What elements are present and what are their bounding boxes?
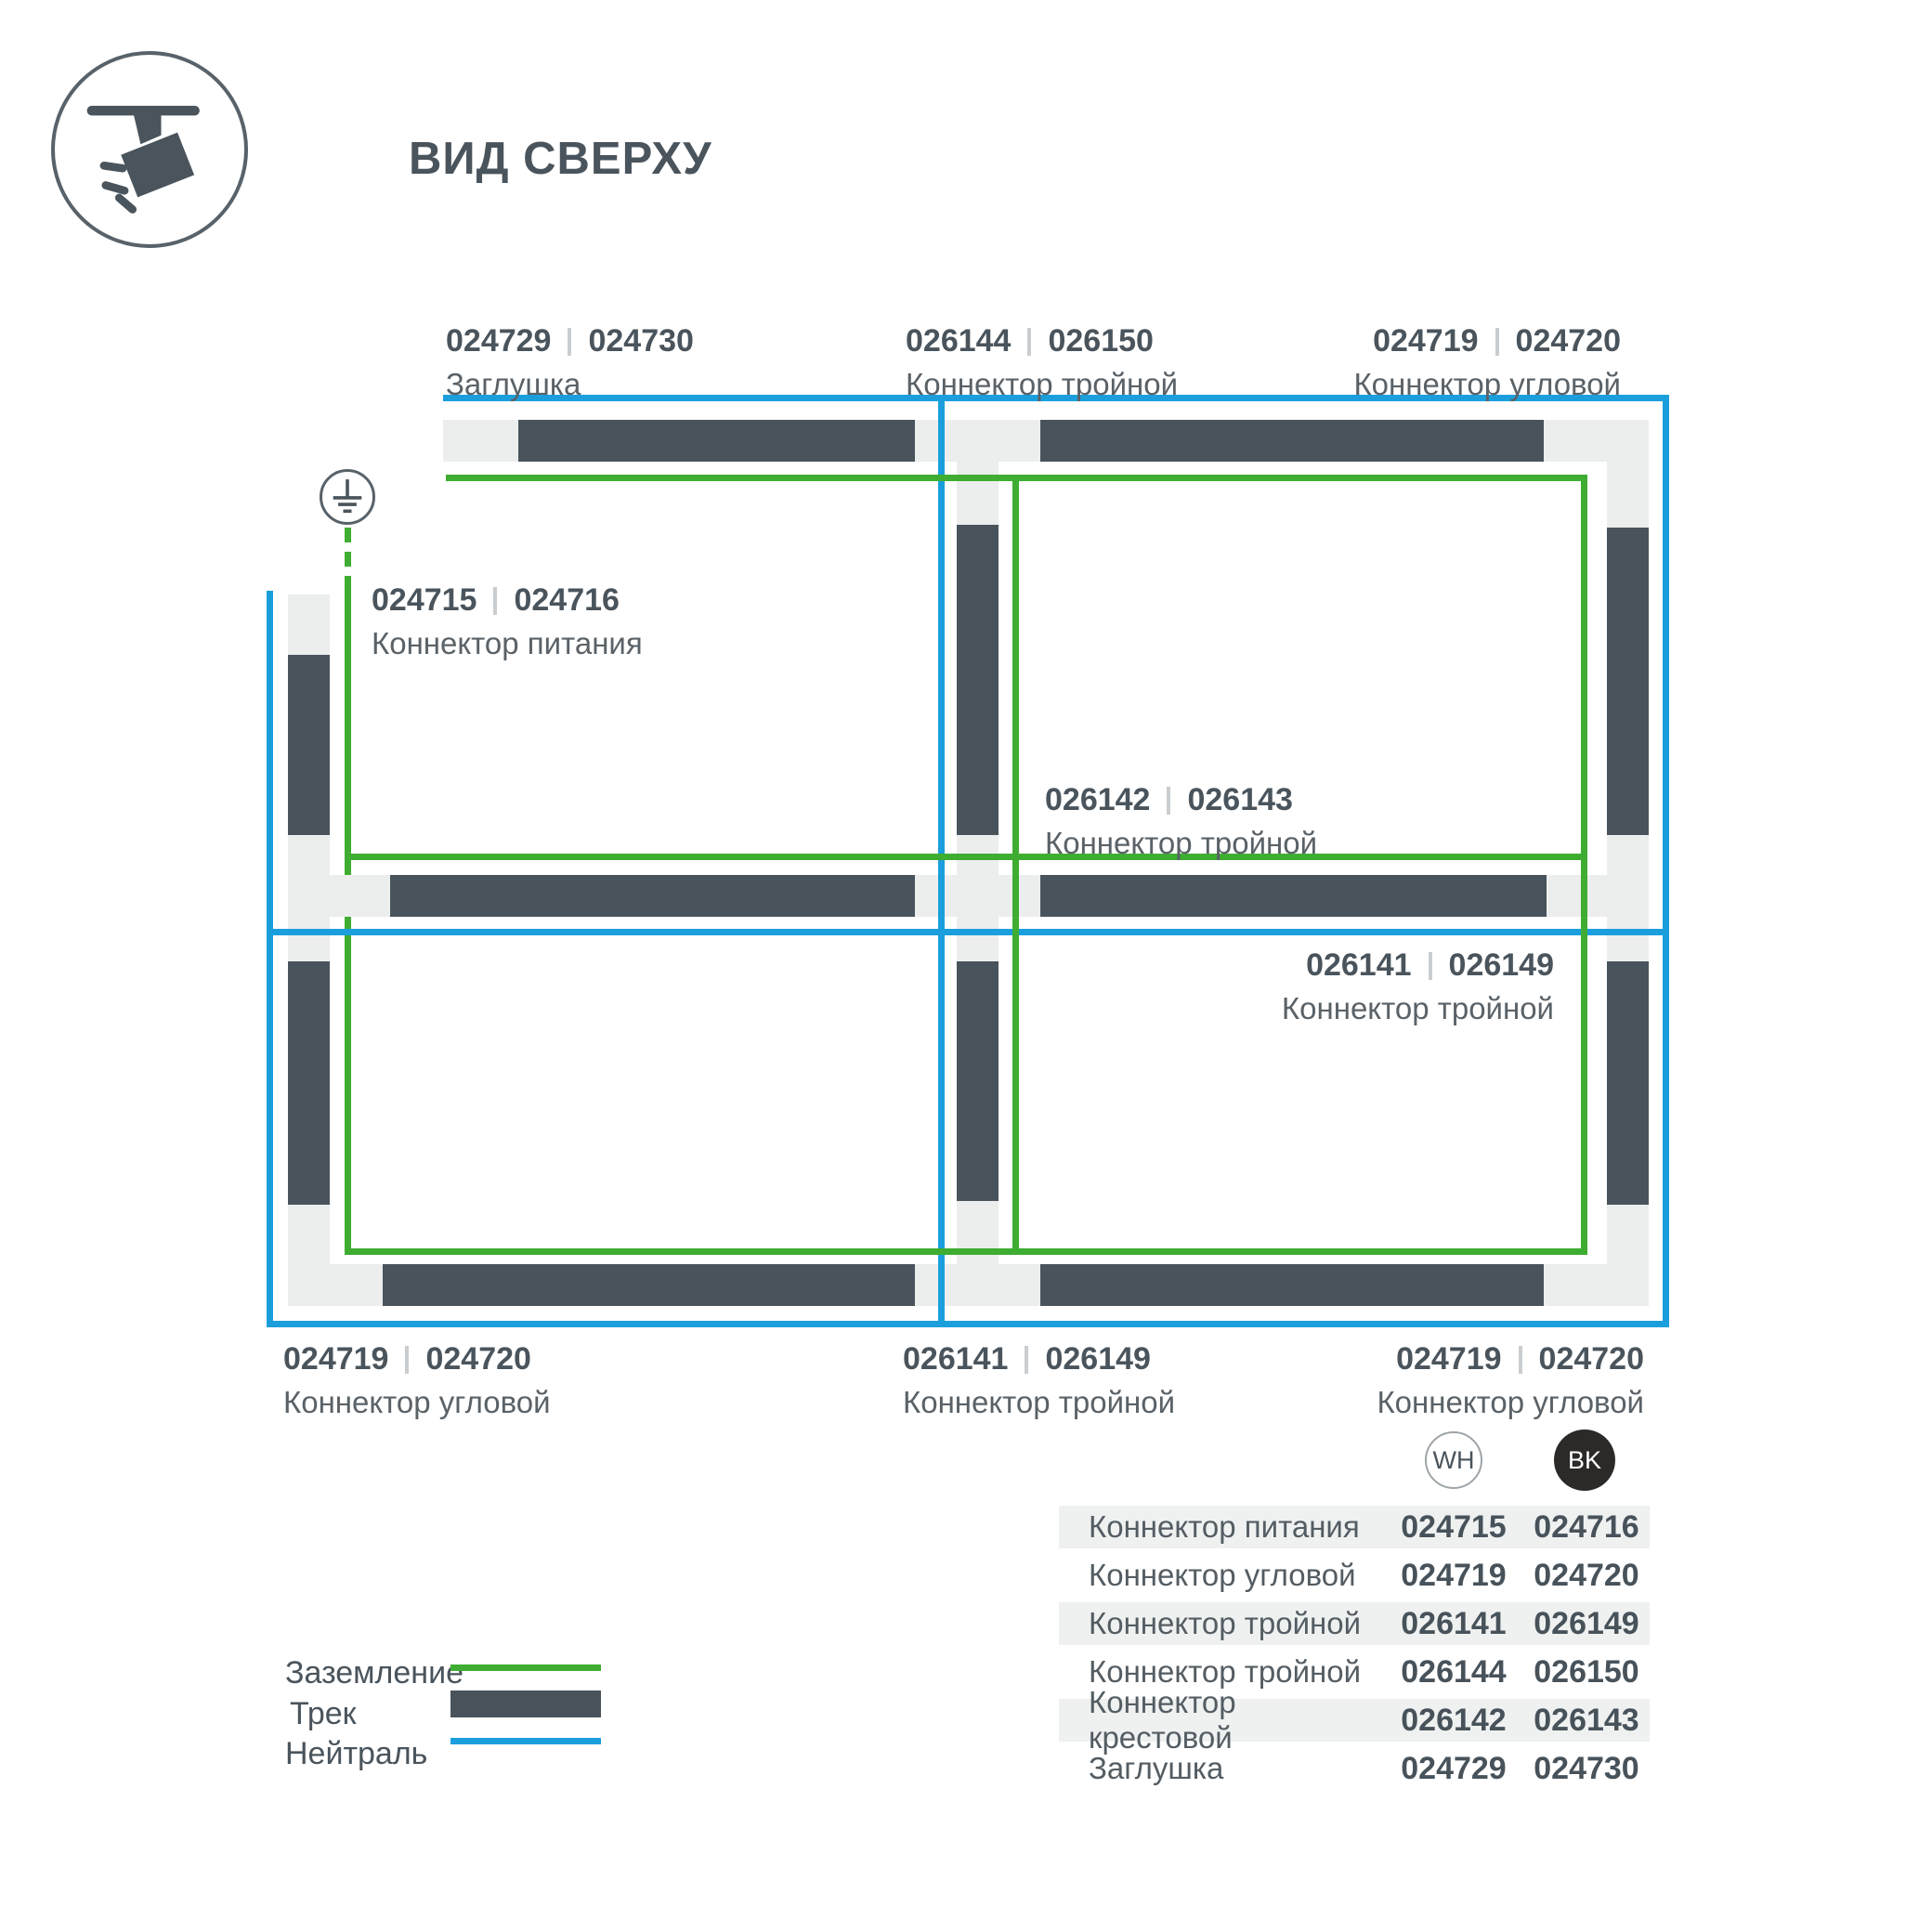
part-label: Коннектор крестовой: [1059, 1685, 1384, 1756]
part-code-bk: 024716: [1523, 1509, 1650, 1546]
neutral-wire-middle-horizontal: [267, 929, 1669, 935]
label-power-connector: 024715024716 Коннектор питания: [372, 582, 643, 661]
connector-end-cap-top: [443, 420, 518, 462]
label-tee-bottom: 026141026149 Коннектор тройной: [903, 1341, 1175, 1420]
connector-tee-bottom-horizontal-part: [915, 1264, 1040, 1306]
legend-swatch-track: [450, 1690, 601, 1717]
neutral-wire-bottom: [267, 1321, 1669, 1327]
connector-power-feed-cap-left: [288, 594, 330, 655]
code-wh: 024715: [372, 582, 476, 619]
table-row: Коннектор крестовой 026142 026143: [1059, 1696, 1650, 1744]
legend-swatch-ground: [450, 1664, 601, 1671]
label-tee-right: 026141026149 Коннектор тройной: [1282, 947, 1554, 1026]
part-name: Коннектор угловой: [1377, 1385, 1644, 1420]
connector-tee-top-horizontal-part: [915, 420, 1040, 462]
connector-tee-right-stem: [1547, 875, 1607, 917]
track-top-horizontal: [443, 420, 1649, 462]
ground-wire-right: [1581, 475, 1587, 1255]
neutral-wire-middle-vertical: [938, 395, 945, 1327]
part-code-wh: 026142: [1384, 1703, 1523, 1739]
table-row: Коннектор тройной 026141 026149: [1059, 1599, 1650, 1648]
connector-corner-topright-horizontal-part: [1544, 420, 1649, 462]
part-name: Коннектор питания: [372, 626, 643, 661]
code-wh: 024719: [1396, 1341, 1501, 1377]
part-code-bk: 024730: [1523, 1751, 1650, 1787]
code-wh: 026142: [1045, 782, 1150, 818]
label-cross-center: 026142026143 Коннектор тройной: [1045, 782, 1317, 861]
color-badge-black: BK: [1554, 1429, 1615, 1491]
table-row: Заглушка 024729 024730: [1059, 1744, 1650, 1793]
code-wh: 026141: [903, 1341, 1008, 1377]
separator: [1025, 1346, 1028, 1374]
separator: [1429, 952, 1432, 980]
connector-tee-left-stem: [330, 875, 390, 917]
connector-corner-bottomleft-horizontal-part: [288, 1264, 383, 1306]
part-code-wh: 024715: [1384, 1509, 1523, 1546]
connector-tee-left-vertical-part: [288, 835, 330, 961]
label-corner-bottomright: 024719024720 Коннектор угловой: [1377, 1341, 1644, 1420]
page: ВИД СВЕРХУ: [0, 0, 1932, 1932]
legend-label-ground: Заземление: [285, 1655, 463, 1691]
code-wh: 026144: [906, 323, 1011, 359]
code-wh: 024719: [283, 1341, 388, 1377]
connector-corner-bottomright-horizontal-part: [1544, 1264, 1649, 1306]
track-spotlight-icon: [51, 51, 248, 248]
ground-wire-middle-vertical: [1012, 475, 1019, 1255]
part-label: Коннектор тройной: [1059, 1606, 1384, 1641]
connector-tee-right-vertical-part: [1607, 835, 1649, 961]
part-label: Заглушка: [1059, 1751, 1384, 1786]
ground-wire-bottom: [345, 1248, 1587, 1255]
separator: [1495, 328, 1499, 356]
earth-ground-icon: [320, 469, 375, 525]
code-bk: 024720: [1516, 323, 1621, 359]
part-label: Коннектор питания: [1059, 1509, 1384, 1545]
separator: [1167, 787, 1170, 815]
code-bk: 026143: [1187, 782, 1292, 818]
part-code-bk: 026150: [1523, 1654, 1650, 1690]
parts-table: Коннектор питания 024715 024716 Коннекто…: [1059, 1503, 1650, 1793]
part-code-bk: 026143: [1523, 1703, 1650, 1739]
part-name: Коннектор тройной: [1045, 826, 1317, 861]
label-corner-bottomleft: 024719024720 Коннектор угловой: [283, 1341, 551, 1420]
code-bk: 024720: [425, 1341, 530, 1377]
code-wh: 024729: [446, 323, 551, 359]
label-tee-top: 026144026150 Коннектор тройной: [906, 323, 1178, 402]
part-name: Коннектор тройной: [906, 367, 1178, 402]
part-label: Коннектор угловой: [1059, 1558, 1384, 1593]
code-bk: 024716: [514, 582, 619, 619]
code-bk: 026150: [1048, 323, 1153, 359]
part-code-bk: 024720: [1523, 1558, 1650, 1594]
separator: [1519, 1346, 1522, 1374]
ground-wire-left-vertical: [345, 591, 351, 1248]
part-name: Коннектор тройной: [903, 1385, 1175, 1420]
part-name: Заглушка: [446, 367, 694, 402]
code-wh: 026141: [1306, 947, 1411, 984]
part-code-wh: 026141: [1384, 1606, 1523, 1642]
track-spotlight-glyph: [55, 55, 244, 244]
table-row: Коннектор питания 024715 024716: [1059, 1503, 1650, 1551]
separator: [1027, 328, 1031, 356]
code-bk: 024730: [588, 323, 693, 359]
legend-label-track: Трек: [290, 1696, 357, 1732]
legend-swatch-neutral: [450, 1738, 601, 1744]
label-corner-topright: 024719024720 Коннектор угловой: [1353, 323, 1621, 402]
ground-wire-dashed-feed: [345, 528, 351, 593]
neutral-wire-right: [1663, 395, 1669, 1327]
separator: [493, 587, 497, 615]
part-name: Коннектор угловой: [283, 1385, 551, 1420]
part-name: Коннектор тройной: [1282, 991, 1554, 1026]
connector-tee-top-stem: [957, 462, 999, 525]
legend-label-neutral: Нейтраль: [285, 1736, 427, 1772]
part-code-bk: 026149: [1523, 1606, 1650, 1642]
code-bk: 024720: [1539, 1341, 1644, 1377]
code-bk: 026149: [1449, 947, 1554, 984]
connector-corner-topright-vertical-part: [1607, 462, 1649, 528]
separator: [568, 328, 571, 356]
table-row: Коннектор угловой 024719 024720: [1059, 1551, 1650, 1599]
label-end-cap-top: 024729024730 Заглушка: [446, 323, 694, 402]
part-code-wh: 024729: [1384, 1751, 1523, 1787]
part-name: Коннектор угловой: [1353, 367, 1621, 402]
code-wh: 024719: [1373, 323, 1478, 359]
color-badge-white: WH: [1425, 1431, 1482, 1489]
ground-wire-middle-horizontal: [345, 854, 1587, 860]
part-code-wh: 026144: [1384, 1654, 1523, 1690]
code-bk: 026149: [1045, 1341, 1150, 1377]
separator: [405, 1346, 409, 1374]
neutral-wire-left: [267, 591, 273, 1327]
part-code-wh: 024719: [1384, 1558, 1523, 1594]
page-title: ВИД СВЕРХУ: [409, 133, 712, 185]
